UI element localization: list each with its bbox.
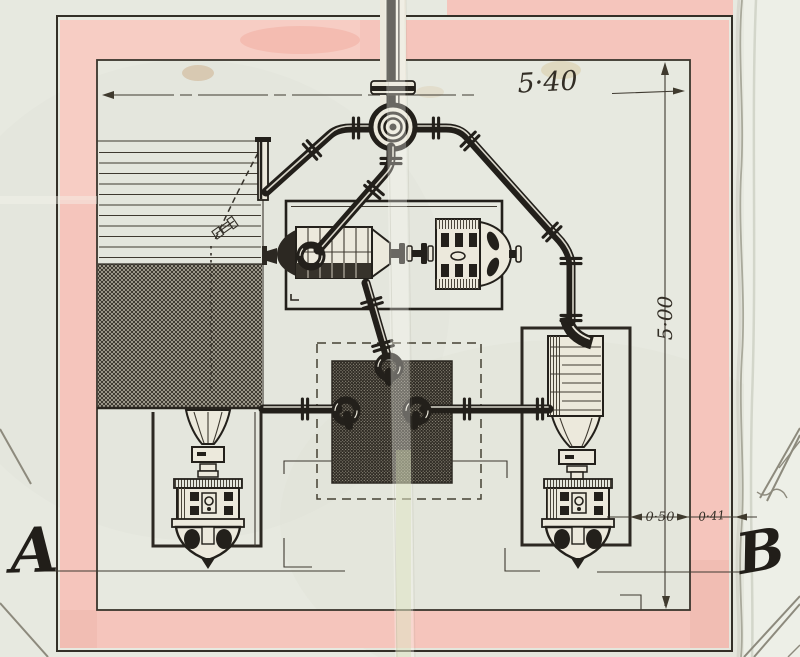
dimension-width-label: 5·40 — [517, 65, 579, 99]
tank-water-hatching — [98, 264, 262, 407]
section-letter-a: A — [4, 513, 60, 588]
wall-band-top-strip — [447, 0, 733, 17]
dimension-pit-to-wall-label: 0·50 — [646, 510, 675, 525]
dimension-height-label: 5·00 — [653, 295, 677, 340]
scanned-plan-photo: 5·40 5·00 0·50 0·41 A B — [0, 0, 800, 657]
dimension-wall-thickness-label: 0·41 — [698, 508, 726, 524]
